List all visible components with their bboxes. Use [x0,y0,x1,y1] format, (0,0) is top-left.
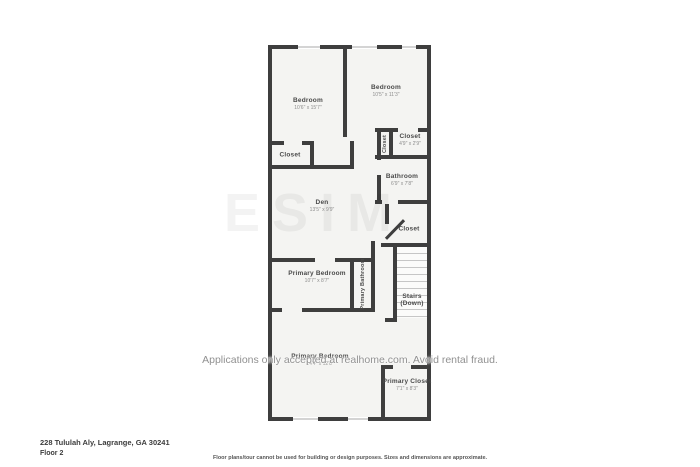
room-label-closet-small: Closet 4'9" x 2'9" [399,133,421,147]
wall [375,128,398,132]
window [293,417,318,421]
wall [381,365,385,421]
wall [343,45,347,137]
window [348,417,368,421]
wall [371,241,375,312]
room-label-primary-closet: Primary Closet 7'1" x 8'3" [383,378,432,392]
wall [268,258,315,262]
window [298,45,320,49]
room-label-stairs: Stairs (Down) [400,293,423,307]
room-label-primary-bedroom-mid: Primary Bedroom 10'7" x 8'7" [288,270,346,284]
wall [335,258,375,262]
stair-treads [397,247,427,318]
floor-plan-page: ESIM [0,0,700,467]
wall [268,165,354,169]
wall [268,141,284,145]
disclaimer-text: Floor plans/tour cannot be used for buil… [0,455,700,461]
room-label-closet-left: Closet [279,152,300,159]
room-label-bathroom: Bathroom 6'9" x 7'8" [386,173,418,187]
room-label-closet-mid: Closet [398,226,419,233]
wall [350,258,354,312]
logo-watermark: ESIM [224,182,404,244]
anti-fraud-watermark: Applications only accepted at realhome.c… [0,354,700,366]
wall [418,128,431,132]
room-label-primary-bathroom: Primary Bathroom [360,258,366,309]
room-label-bedroom-right: Bedroom 10'5" x 11'3" [371,84,401,98]
property-address: 228 Tululah Aly, Lagrange, GA 30241 [40,438,170,447]
room-label-bedroom-left: Bedroom 10'6" x 15'7" [293,97,323,111]
room-label-den: Den 13'5" x 9'9" [310,199,335,213]
window [402,45,416,49]
wall [268,308,282,312]
room-label-closet-vertical: Closet [382,135,388,153]
wall [375,155,431,159]
window [352,45,377,49]
wall [385,318,397,322]
wall [350,141,354,169]
